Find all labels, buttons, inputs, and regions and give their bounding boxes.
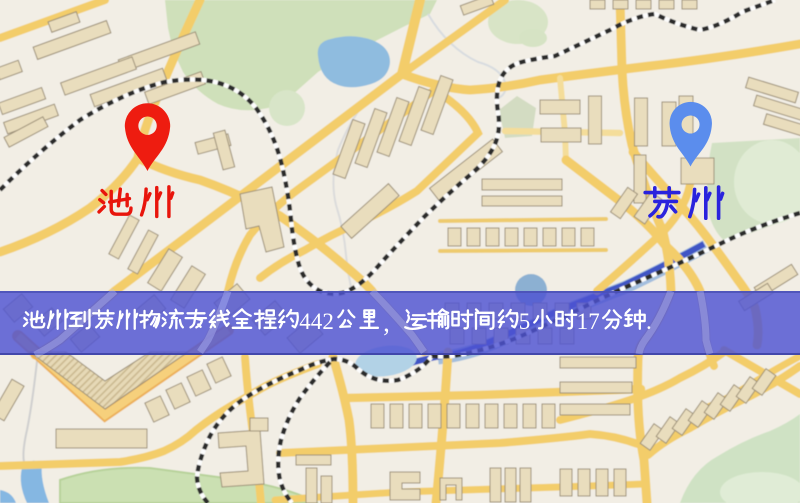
svg-text:2: 2 — [322, 309, 334, 334]
svg-text:.: . — [646, 309, 652, 334]
svg-text:7: 7 — [588, 309, 600, 334]
svg-text:,: , — [383, 308, 390, 337]
svg-text:4: 4 — [299, 309, 311, 334]
svg-text:1: 1 — [577, 309, 589, 334]
svg-text:5: 5 — [519, 309, 531, 334]
svg-text:4: 4 — [311, 309, 323, 334]
